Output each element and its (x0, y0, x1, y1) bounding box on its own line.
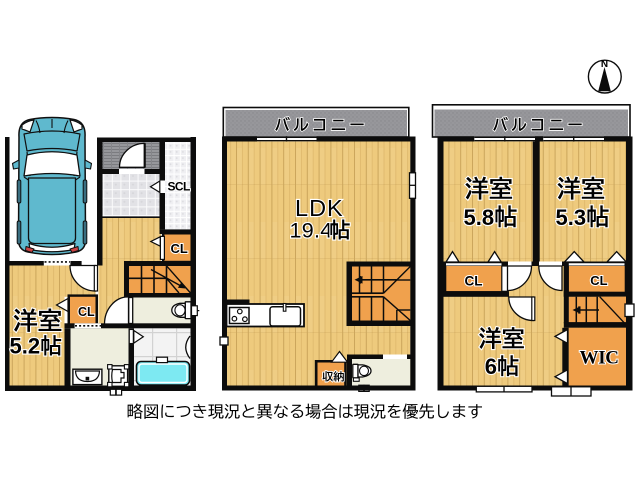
svg-text:5.2: 5.2 (10, 334, 41, 359)
svg-text:5.3: 5.3 (556, 205, 587, 230)
svg-text:CL: CL (171, 241, 188, 256)
svg-text:WIC: WIC (580, 348, 619, 369)
svg-text:CL: CL (78, 305, 95, 319)
svg-text:5.8: 5.8 (464, 205, 495, 230)
svg-text:6: 6 (485, 354, 497, 379)
svg-text:LDK: LDK (295, 195, 344, 221)
svg-text:CL: CL (590, 273, 607, 288)
svg-text:SCL: SCL (168, 180, 190, 194)
svg-text:CL: CL (465, 274, 483, 289)
svg-text:19.4: 19.4 (290, 219, 333, 243)
svg-text:N: N (601, 59, 608, 70)
